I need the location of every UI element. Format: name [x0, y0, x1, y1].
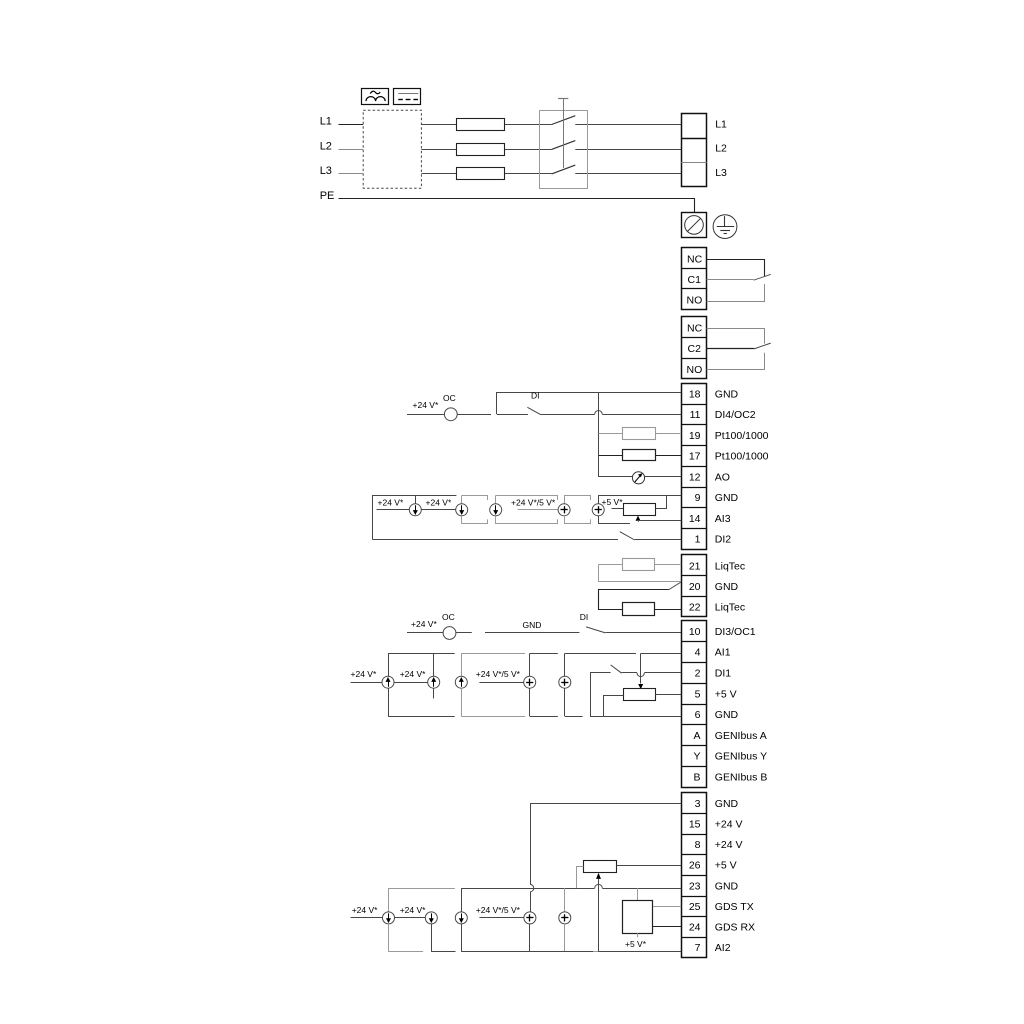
- svg-text:GDS TX: GDS TX: [715, 901, 754, 913]
- svg-text:DI: DI: [580, 612, 589, 622]
- svg-text:OC: OC: [442, 612, 455, 622]
- svg-text:GENIbus Y: GENIbus Y: [715, 751, 767, 763]
- svg-text:DI1: DI1: [715, 668, 732, 680]
- svg-text:+5 V: +5 V: [715, 860, 737, 872]
- svg-text:LiqTec: LiqTec: [715, 560, 745, 572]
- svg-text:22: 22: [689, 602, 701, 614]
- svg-text:Pt100/1000: Pt100/1000: [715, 451, 769, 463]
- svg-text:DI2: DI2: [715, 534, 732, 546]
- svg-text:+24 V*: +24 V*: [411, 619, 437, 629]
- svg-text:+24 V*/5 V*: +24 V*/5 V*: [476, 669, 521, 679]
- svg-text:+24 V*: +24 V*: [413, 400, 439, 410]
- svg-text:1: 1: [695, 534, 701, 546]
- svg-text:DI4/OC2: DI4/OC2: [715, 409, 756, 421]
- svg-text:AO: AO: [715, 471, 730, 483]
- svg-text:GND: GND: [715, 880, 739, 892]
- svg-text:5: 5: [695, 688, 701, 700]
- svg-text:2: 2: [695, 668, 701, 680]
- svg-text:+24 V*: +24 V*: [352, 905, 378, 915]
- svg-text:+24 V*: +24 V*: [400, 669, 426, 679]
- svg-text:4: 4: [695, 647, 701, 659]
- svg-text:OC: OC: [443, 393, 456, 403]
- svg-text:24: 24: [689, 922, 701, 934]
- svg-text:B: B: [693, 771, 700, 783]
- svg-text:+5 V: +5 V: [715, 688, 737, 700]
- svg-text:L3: L3: [715, 167, 727, 179]
- svg-text:A: A: [693, 730, 700, 742]
- svg-text:18: 18: [689, 388, 701, 400]
- svg-text:L1: L1: [320, 116, 332, 128]
- svg-text:+24 V: +24 V: [715, 839, 743, 851]
- svg-text:GND: GND: [715, 798, 739, 810]
- svg-text:+5 V*: +5 V*: [602, 497, 624, 507]
- svg-text:PE: PE: [320, 190, 335, 202]
- svg-text:Pt100/1000: Pt100/1000: [715, 430, 769, 442]
- svg-text:12: 12: [689, 471, 701, 483]
- svg-text:+24 V*/5 V*: +24 V*/5 V*: [511, 498, 556, 508]
- svg-text:+24 V: +24 V: [715, 819, 743, 831]
- svg-text:21: 21: [689, 560, 701, 572]
- svg-text:DI: DI: [531, 391, 540, 401]
- svg-text:+24 V*: +24 V*: [351, 669, 377, 679]
- svg-text:NO: NO: [687, 295, 703, 307]
- svg-text:26: 26: [689, 860, 701, 872]
- svg-text:6: 6: [695, 709, 701, 721]
- svg-text:10: 10: [689, 626, 701, 638]
- svg-text:AI3: AI3: [715, 513, 731, 525]
- svg-text:NC: NC: [687, 323, 703, 335]
- svg-text:LiqTec: LiqTec: [715, 602, 745, 614]
- svg-text:+24 V*/5 V*: +24 V*/5 V*: [476, 905, 521, 915]
- svg-text:Y: Y: [693, 751, 700, 763]
- svg-text:NC: NC: [687, 253, 703, 265]
- svg-text:GENIbus A: GENIbus A: [715, 730, 767, 742]
- svg-text:C2: C2: [688, 343, 702, 355]
- svg-text:23: 23: [689, 880, 701, 892]
- svg-text:+24 V*: +24 V*: [426, 498, 452, 508]
- svg-text:17: 17: [689, 451, 701, 463]
- svg-text:11: 11: [690, 409, 701, 421]
- svg-text:19: 19: [689, 430, 701, 442]
- svg-text:L2: L2: [715, 143, 727, 155]
- svg-text:GND: GND: [523, 620, 542, 630]
- svg-text:8: 8: [695, 839, 701, 851]
- svg-text:+24 V*: +24 V*: [400, 905, 426, 915]
- svg-text:GENIbus B: GENIbus B: [715, 771, 768, 783]
- svg-text:25: 25: [689, 901, 701, 913]
- svg-text:3: 3: [695, 798, 701, 810]
- svg-text:L2: L2: [320, 141, 332, 153]
- svg-text:AI1: AI1: [715, 647, 731, 659]
- svg-text:GND: GND: [715, 709, 739, 721]
- svg-text:+24 V*: +24 V*: [378, 498, 404, 508]
- svg-text:GDS RX: GDS RX: [715, 922, 755, 934]
- svg-text:AI2: AI2: [715, 942, 731, 954]
- svg-text:+5 V*: +5 V*: [625, 939, 647, 949]
- svg-text:7: 7: [695, 942, 701, 954]
- svg-text:C1: C1: [688, 274, 702, 286]
- svg-text:GND: GND: [715, 388, 739, 400]
- svg-text:14: 14: [689, 513, 701, 525]
- svg-text:GND: GND: [715, 492, 739, 504]
- svg-text:GND: GND: [715, 581, 739, 593]
- svg-text:L1: L1: [715, 118, 727, 130]
- svg-text:15: 15: [689, 819, 701, 831]
- svg-text:L3: L3: [320, 165, 332, 177]
- svg-text:20: 20: [689, 581, 701, 593]
- svg-text:9: 9: [695, 492, 701, 504]
- svg-text:NO: NO: [687, 364, 703, 376]
- svg-text:DI3/OC1: DI3/OC1: [715, 626, 756, 638]
